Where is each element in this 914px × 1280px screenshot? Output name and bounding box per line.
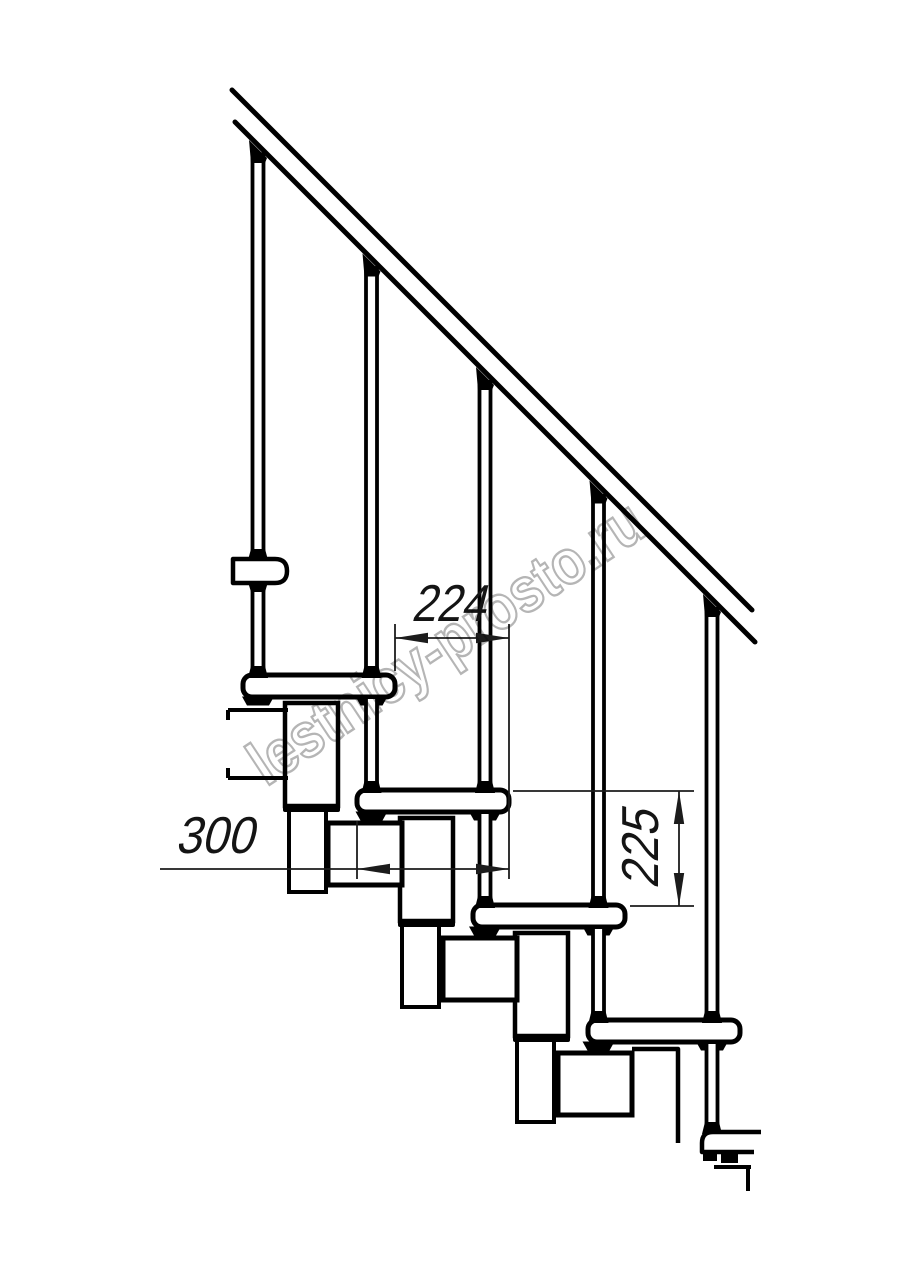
- bracket-bottom-cap: [248, 582, 268, 592]
- support-module-base-bar-2: [398, 919, 455, 927]
- baluster-3-cap-2: [475, 896, 495, 908]
- baluster-3-cap-1: [475, 781, 495, 793]
- baluster-1-cap-1: [248, 666, 268, 678]
- tread-3: [473, 905, 625, 927]
- dim-depth-label: 300: [172, 807, 264, 865]
- staircase-technical-drawing: 224300225lestnicy-prosto.ru: [0, 0, 914, 1280]
- under-tread-collar-1-1: [242, 697, 274, 706]
- under-tread-collar-3-1: [469, 927, 501, 936]
- support-module-base-bar-1: [283, 804, 340, 812]
- dim-rise-label: 225: [612, 799, 670, 891]
- dim-depth-arrow-2: [476, 864, 509, 874]
- staircase-drawing-svg: 224300225lestnicy-prosto.ru: [0, 0, 914, 1280]
- baluster-2-cap-2: [362, 781, 382, 793]
- support-narrow-box-2: [402, 923, 439, 1007]
- tread-4: [588, 1020, 740, 1042]
- baluster-4-cap-1: [589, 896, 609, 908]
- tread-5-partial: [702, 1132, 761, 1152]
- handrail-bracket: [233, 559, 287, 583]
- support-connector-box-1: [328, 823, 402, 885]
- support-narrow-box-3: [517, 1038, 554, 1122]
- under-tread-collar-2-1: [356, 812, 388, 821]
- support-module-box-3: [515, 933, 568, 1036]
- cutoff-foot-1: [703, 1152, 717, 1161]
- baluster-5-cap-1: [702, 1011, 722, 1023]
- cutoff-foot-2: [721, 1152, 738, 1163]
- support-narrow-box-1: [289, 808, 326, 892]
- under-tread-collar-4-1: [583, 1042, 615, 1051]
- support-connector-box-2: [443, 938, 517, 1000]
- support-connector-box-3: [558, 1053, 632, 1115]
- baluster-4-cap-2: [589, 1011, 609, 1023]
- tread-2: [357, 790, 509, 812]
- dim-rise-arrow-2: [674, 873, 684, 906]
- support-module-cutoff-line-1: [632, 1049, 678, 1143]
- handrail-bottom-edge: [235, 122, 755, 642]
- baluster-5-cap-2: [702, 1122, 722, 1134]
- dim-rise-arrow-1: [674, 791, 684, 824]
- bracket-top-cap: [248, 549, 268, 560]
- support-module-base-bar-3: [513, 1034, 570, 1042]
